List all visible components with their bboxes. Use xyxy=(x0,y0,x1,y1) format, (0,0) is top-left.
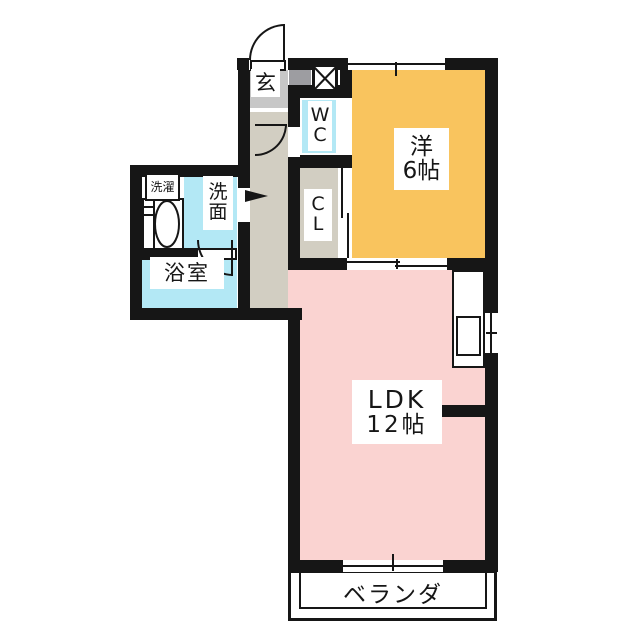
bathroom-text: 浴室 xyxy=(164,262,210,284)
washroom-text-line1: 洗 xyxy=(208,183,227,203)
washing-machine-pan xyxy=(142,198,184,250)
closet-text-line2: L xyxy=(313,215,324,235)
window-western-top xyxy=(348,58,445,70)
western-name-text: 洋 xyxy=(410,135,433,159)
western-size-text: 6帖 xyxy=(403,159,441,183)
wall-ldk-left xyxy=(288,308,300,572)
ldk-size-text: 12帖 xyxy=(366,413,427,437)
label-western-room: 洋 6帖 xyxy=(394,128,449,190)
washroom-text-line2: 面 xyxy=(208,203,227,223)
floor-plan: 玄 W C C L 洗濯 洗 面 浴室 洋 6帖 LDK 12帖 ベランダ xyxy=(0,0,640,640)
washroom-door-opening xyxy=(238,188,250,222)
kitchen-sink xyxy=(456,316,481,356)
window-balcony xyxy=(343,560,443,572)
ldk-name-text: LDK xyxy=(368,387,427,413)
wall-wc-bottom xyxy=(300,155,352,168)
sliding-door-western-ldk xyxy=(347,258,447,270)
label-wc: W C xyxy=(308,101,332,151)
wc-text-line2: C xyxy=(313,126,326,146)
label-washroom: 洗 面 xyxy=(203,176,233,230)
wall-wet-bottom xyxy=(130,308,302,320)
label-laundry: 洗濯 xyxy=(145,173,180,201)
wall-wet-left xyxy=(130,165,142,320)
wall-kitchen-stub xyxy=(438,405,498,417)
label-ldk: LDK 12帖 xyxy=(352,380,442,444)
wall-hall-right xyxy=(288,85,300,270)
label-bathroom: 浴室 xyxy=(150,257,224,289)
genkan-text: 玄 xyxy=(255,72,276,94)
meter-box xyxy=(312,64,338,92)
wc-text-line1: W xyxy=(311,106,330,126)
label-veranda: ベランダ xyxy=(320,580,466,610)
window-kitchen-right xyxy=(485,313,498,353)
wc-door-opening xyxy=(288,127,300,157)
veranda-text: ベランダ xyxy=(343,583,443,607)
entrance-door-arc xyxy=(249,24,285,60)
closet-text-line1: C xyxy=(311,195,324,215)
laundry-text: 洗濯 xyxy=(150,181,174,194)
sliding-door-closet xyxy=(338,168,352,258)
label-genkan: 玄 xyxy=(251,69,280,97)
label-closet: C L xyxy=(304,189,332,241)
